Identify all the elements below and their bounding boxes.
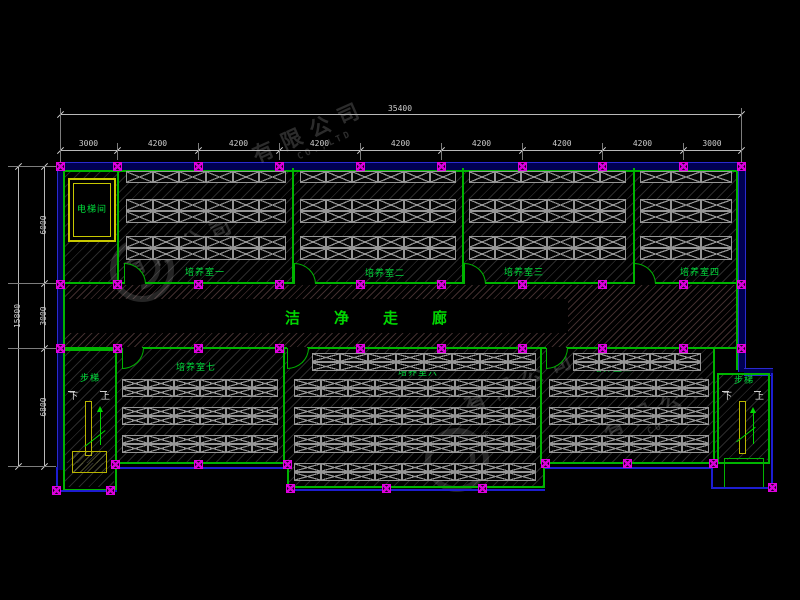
dimension-label: 4200 (623, 139, 663, 149)
dimension-label: 4200 (138, 139, 178, 149)
dimension-label: 4200 (462, 139, 502, 149)
rack-cell (321, 463, 348, 472)
rack-cell (573, 362, 599, 371)
rack-cell (348, 435, 375, 444)
column-marker (52, 486, 61, 495)
rack-row (294, 388, 536, 397)
left-stair-up-label: 上 (101, 393, 110, 402)
rack-cell (300, 199, 326, 211)
rack-cell (521, 248, 547, 260)
rack-cell (294, 388, 321, 397)
wall-green (117, 168, 119, 284)
rack-row (300, 236, 456, 248)
column-marker (382, 484, 391, 493)
rack-cell (375, 416, 402, 425)
rack-cell (701, 171, 732, 183)
rack-row (122, 388, 278, 397)
rack-cell (122, 379, 148, 388)
rack-row (122, 435, 278, 444)
rack-cell (682, 435, 709, 444)
rack-row (469, 236, 626, 248)
left-stair-arrowhead-icon (97, 406, 103, 412)
rack-cell (378, 236, 404, 248)
rack-cell (602, 416, 629, 425)
rack-cell (576, 416, 603, 425)
rack-cell (122, 444, 148, 453)
rack-cell (252, 379, 278, 388)
wall-green (142, 347, 287, 349)
rack-cell (294, 444, 321, 453)
rack-cell (226, 388, 252, 397)
rack-cell (148, 379, 174, 388)
shelving-rack (300, 171, 456, 183)
rack-cell (469, 211, 495, 223)
extension-line (117, 143, 118, 160)
rack-cell (326, 199, 352, 211)
rack-cell (430, 211, 456, 223)
shelving-rack (122, 379, 278, 397)
rack-row (549, 407, 709, 416)
rack-cell (428, 379, 455, 388)
rack-cell (404, 171, 430, 183)
rack-cell (122, 407, 148, 416)
rack-cell (549, 388, 576, 397)
rack-cell (574, 236, 600, 248)
column-marker (275, 344, 284, 353)
rack-row (573, 353, 701, 362)
column-marker (598, 280, 607, 289)
shelving-rack (549, 379, 709, 397)
room-label-culture-7: 培养室七 (176, 363, 216, 373)
rack-cell (402, 435, 429, 444)
rack-row (122, 407, 278, 416)
rack-cell (549, 407, 576, 416)
rack-cell (312, 362, 340, 371)
rack-cell (482, 416, 509, 425)
rack-cell (396, 362, 424, 371)
rack-cell (122, 416, 148, 425)
dimension-label: 6800 (39, 384, 49, 430)
rack-cell (521, 211, 547, 223)
rack-cell (495, 236, 521, 248)
column-marker (679, 280, 688, 289)
rack-cell (375, 435, 402, 444)
rack-cell (576, 388, 603, 397)
rack-cell (294, 435, 321, 444)
column-marker (737, 280, 746, 289)
dimension-label: 4200 (300, 139, 340, 149)
rack-cell (352, 199, 378, 211)
rack-cell (701, 248, 732, 260)
rack-cell (259, 236, 286, 248)
wall-green (654, 282, 738, 284)
extension-line (8, 466, 56, 467)
dimension-label: 4200 (219, 139, 259, 149)
rack-cell (656, 388, 683, 397)
wall-green (540, 348, 542, 464)
column-marker (478, 484, 487, 493)
extension-line (8, 348, 56, 349)
rack-row (126, 248, 286, 260)
shelving-rack (294, 463, 536, 481)
shelving-rack (122, 435, 278, 453)
rack-cell (656, 407, 683, 416)
rack-row (640, 236, 732, 248)
column-marker (111, 460, 120, 469)
rack-cell (682, 444, 709, 453)
rack-cell (656, 379, 683, 388)
rack-cell (174, 416, 200, 425)
rack-cell (576, 407, 603, 416)
column-marker (768, 483, 777, 492)
column-marker (283, 460, 292, 469)
extension-line (602, 143, 603, 160)
outline-blue (711, 487, 772, 489)
column-marker (56, 344, 65, 353)
rack-cell (455, 444, 482, 453)
extension-line (741, 143, 742, 160)
extension-line (198, 143, 199, 160)
rack-cell (252, 435, 278, 444)
rack-cell (352, 236, 378, 248)
rack-cell (174, 435, 200, 444)
column-marker (737, 162, 746, 171)
rack-cell (675, 362, 701, 371)
rack-cell (656, 444, 683, 453)
elevator-shaft: 电梯间 (68, 178, 116, 242)
wall-green (736, 170, 738, 370)
right-stair-lower-box (724, 458, 764, 488)
shelving-rack (469, 171, 626, 183)
rack-cell (368, 362, 396, 371)
rack-cell (126, 211, 153, 223)
column-marker (709, 459, 718, 468)
rack-row (549, 435, 709, 444)
rack-cell (428, 416, 455, 425)
rack-cell (547, 236, 573, 248)
rack-cell (671, 211, 702, 223)
column-marker (275, 280, 284, 289)
column-marker (623, 459, 632, 468)
rack-cell (378, 248, 404, 260)
wall-green (713, 348, 715, 464)
rack-cell (294, 463, 321, 472)
rack-cell (126, 171, 153, 183)
rack-cell (126, 236, 153, 248)
dimension-label: 6000 (39, 202, 49, 248)
rack-cell (600, 236, 626, 248)
shelving-rack (573, 353, 701, 371)
rack-row (469, 171, 626, 183)
rack-cell (200, 444, 226, 453)
shelving-rack (640, 199, 732, 223)
column-marker (113, 162, 122, 171)
rack-row (469, 199, 626, 211)
rack-cell (599, 353, 625, 362)
rack-cell (200, 435, 226, 444)
room-label-culture-3: 培养室三 (504, 268, 544, 278)
shelving-rack (126, 236, 286, 260)
rack-cell (430, 171, 456, 183)
wall-green (287, 486, 545, 488)
rack-row (294, 472, 536, 481)
rack-cell (348, 416, 375, 425)
rack-cell (508, 362, 536, 371)
rack-cell (671, 236, 702, 248)
rack-cell (495, 199, 521, 211)
rack-cell (148, 435, 174, 444)
rack-cell (701, 236, 732, 248)
rack-cell (682, 388, 709, 397)
rack-cell (547, 199, 573, 211)
rack-cell (375, 379, 402, 388)
right-stair-down-tick (722, 391, 729, 392)
column-marker (113, 344, 122, 353)
rack-cell (482, 388, 509, 397)
rack-cell (294, 407, 321, 416)
shelving-rack (294, 435, 536, 453)
rack-cell (402, 407, 429, 416)
column-marker (437, 162, 446, 171)
rack-cell (153, 211, 180, 223)
rack-cell (326, 171, 352, 183)
rack-row (312, 362, 536, 371)
rack-cell (300, 211, 326, 223)
rack-cell (424, 362, 452, 371)
rack-cell (148, 416, 174, 425)
rack-cell (629, 444, 656, 453)
rack-cell (455, 407, 482, 416)
rack-cell (200, 379, 226, 388)
shelving-rack (126, 199, 286, 223)
outline-blue (287, 489, 545, 491)
rack-row (122, 379, 278, 388)
right-stair-stringer (739, 401, 746, 454)
column-marker (679, 162, 688, 171)
rack-cell (455, 463, 482, 472)
rack-cell (340, 362, 368, 371)
extension-line (8, 166, 56, 167)
left-stair-down-label: 下 (69, 393, 78, 402)
rack-cell (602, 388, 629, 397)
column-marker (56, 280, 65, 289)
rack-cell (252, 444, 278, 453)
rack-cell (640, 248, 671, 260)
rack-cell (294, 416, 321, 425)
rack-cell (153, 248, 180, 260)
rack-cell (574, 171, 600, 183)
dimension-line (60, 114, 741, 115)
column-marker (598, 162, 607, 171)
wall-green (144, 282, 294, 284)
floor-plan: 洁净走廊 电梯间 培养室一 培养室二 培养室三 培养室四 培养室七 培养室六 培… (0, 0, 800, 600)
rack-cell (252, 407, 278, 416)
rack-row (126, 199, 286, 211)
rack-cell (326, 236, 352, 248)
elevator-label: 电梯间 (70, 202, 114, 215)
rack-cell (495, 248, 521, 260)
rack-cell (326, 248, 352, 260)
rack-row (294, 444, 536, 453)
rack-cell (348, 407, 375, 416)
rack-row (640, 171, 732, 183)
rack-cell (179, 248, 206, 260)
rack-cell (509, 416, 536, 425)
column-marker (356, 280, 365, 289)
rack-cell (200, 416, 226, 425)
rack-cell (200, 388, 226, 397)
rack-row (469, 211, 626, 223)
shelving-rack (469, 236, 626, 260)
rack-cell (404, 236, 430, 248)
rack-row (122, 444, 278, 453)
room-label-culture-4: 培养室四 (680, 268, 720, 278)
column-marker (518, 280, 527, 289)
rack-cell (321, 435, 348, 444)
dimension-label: 3000 (692, 139, 732, 149)
rack-cell (671, 248, 702, 260)
dimension-label: 3000 (69, 139, 109, 149)
rack-row (126, 236, 286, 248)
rack-cell (153, 171, 180, 183)
column-marker (518, 162, 527, 171)
extension-line (441, 143, 442, 160)
column-marker (194, 280, 203, 289)
rack-cell (233, 236, 260, 248)
rack-row (469, 248, 626, 260)
rack-row (549, 416, 709, 425)
rack-cell (482, 472, 509, 481)
rack-cell (312, 353, 340, 362)
rack-row (294, 379, 536, 388)
column-marker (737, 344, 746, 353)
rack-cell (402, 472, 429, 481)
rack-cell (656, 435, 683, 444)
rack-cell (455, 435, 482, 444)
rack-cell (300, 248, 326, 260)
column-marker (275, 162, 284, 171)
outline-blue (771, 373, 773, 489)
rack-cell (206, 236, 233, 248)
dimension-label: 35400 (370, 104, 430, 114)
rack-cell (452, 362, 480, 371)
rack-row (549, 444, 709, 453)
rack-cell (402, 388, 429, 397)
column-marker (598, 344, 607, 353)
shelving-rack (294, 379, 536, 397)
rack-cell (259, 171, 286, 183)
column-marker (679, 344, 688, 353)
rack-cell (629, 416, 656, 425)
rack-row (549, 379, 709, 388)
rack-cell (179, 211, 206, 223)
rack-cell (430, 236, 456, 248)
rack-row (126, 211, 286, 223)
rack-row (573, 362, 701, 371)
column-marker (437, 344, 446, 353)
rack-row (300, 171, 456, 183)
rack-cell (378, 211, 404, 223)
rack-cell (428, 388, 455, 397)
rack-row (122, 416, 278, 425)
rack-cell (321, 416, 348, 425)
rack-row (640, 248, 732, 260)
column-marker (113, 280, 122, 289)
rack-cell (640, 236, 671, 248)
rack-cell (352, 211, 378, 223)
column-marker (106, 486, 115, 495)
rack-cell (148, 407, 174, 416)
rack-cell (452, 353, 480, 362)
corridor-label: 洁净走廊 (285, 307, 481, 328)
left-stair-up-tick (100, 391, 107, 392)
rack-cell (404, 211, 430, 223)
rack-cell (226, 407, 252, 416)
rack-cell (629, 379, 656, 388)
corridor-band: 洁净走廊 (63, 299, 568, 333)
rack-cell (321, 444, 348, 453)
rack-cell (701, 199, 732, 211)
rack-cell (682, 416, 709, 425)
rack-cell (574, 199, 600, 211)
rack-cell (148, 444, 174, 453)
rack-cell (509, 472, 536, 481)
rack-cell (122, 435, 148, 444)
rack-cell (206, 199, 233, 211)
rack-cell (521, 236, 547, 248)
rack-cell (174, 388, 200, 397)
wall-green (283, 348, 285, 464)
rack-cell (640, 211, 671, 223)
rack-cell (576, 444, 603, 453)
right-stair-up-label: 上 (755, 393, 764, 402)
dimension-label: 4200 (381, 139, 421, 149)
rack-cell (574, 248, 600, 260)
rack-cell (640, 199, 671, 211)
rack-cell (624, 362, 650, 371)
rack-cell (549, 435, 576, 444)
rack-cell (326, 211, 352, 223)
rack-cell (480, 362, 508, 371)
shelving-rack (300, 199, 456, 223)
rack-cell (206, 211, 233, 223)
extension-line (683, 143, 684, 160)
rack-cell (321, 379, 348, 388)
rack-cell (482, 444, 509, 453)
rack-cell (602, 435, 629, 444)
wall-green (63, 170, 65, 462)
rack-cell (233, 211, 260, 223)
column-marker (356, 162, 365, 171)
left-stair-landing (72, 451, 107, 473)
dimension-line (60, 150, 741, 151)
shelving-rack (122, 407, 278, 425)
rack-row (294, 407, 536, 416)
column-marker (437, 280, 446, 289)
rack-cell (340, 353, 368, 362)
rack-cell (509, 444, 536, 453)
rack-cell (321, 472, 348, 481)
rack-cell (508, 353, 536, 362)
rack-cell (375, 463, 402, 472)
rack-cell (428, 407, 455, 416)
rack-cell (455, 388, 482, 397)
column-marker (56, 162, 65, 171)
column-marker (194, 460, 203, 469)
rack-cell (640, 171, 671, 183)
rack-cell (348, 463, 375, 472)
column-marker (194, 344, 203, 353)
